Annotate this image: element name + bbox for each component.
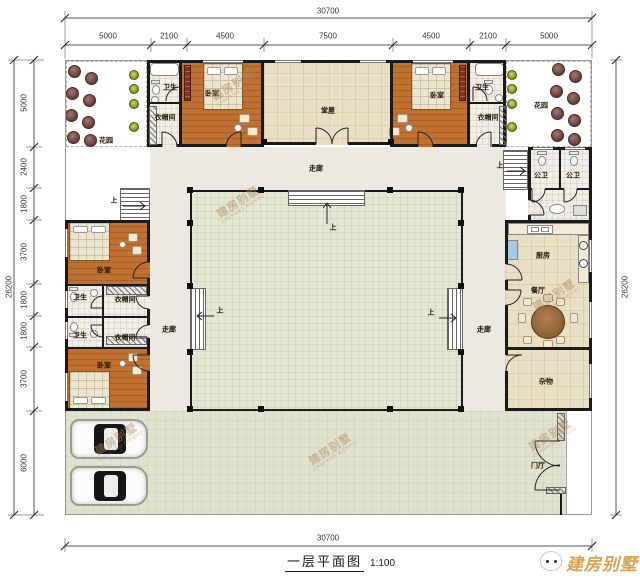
label-storage: 杂物 xyxy=(539,379,553,386)
label-cloak-nw: 衣帽间 xyxy=(155,115,176,122)
door-arcs xyxy=(91,87,577,490)
door-arc xyxy=(564,189,577,202)
dim-extension xyxy=(8,11,622,552)
door-arc xyxy=(506,290,521,305)
label-up-stairs-east: 上 xyxy=(497,163,504,170)
dim-top-seg-3: 7500 xyxy=(319,32,337,41)
up-arrow xyxy=(439,314,456,322)
up-arrow xyxy=(507,167,525,175)
door-arc xyxy=(133,262,149,278)
door-arc xyxy=(332,128,348,144)
dim-top-seg-2: 4500 xyxy=(216,32,234,41)
dim-bottom-total: 30700 xyxy=(317,534,339,543)
label-up-court-north: 上 xyxy=(330,225,337,232)
label-toilet-e2: 公卫 xyxy=(566,173,580,180)
door-arc xyxy=(91,325,103,337)
door-arc xyxy=(226,132,241,147)
dim-left-seg-4: 1800 xyxy=(20,291,29,309)
dim-left-seg-5: 1800 xyxy=(20,322,29,340)
label-bath-w2: 卫生 xyxy=(73,333,87,340)
door-arc xyxy=(476,132,491,147)
dim-top-total: 30700 xyxy=(317,7,339,16)
label-kitchen: 厨房 xyxy=(536,253,550,260)
drawing-title: 一层平面图1:100 xyxy=(285,551,395,571)
label-cloak-ne: 衣帽间 xyxy=(478,115,499,122)
label-hall: 堂屋 xyxy=(321,108,335,115)
label-bedroom-ne: 卧室 xyxy=(430,93,444,100)
mascot-eye xyxy=(554,560,557,563)
label-corridor-north: 走廊 xyxy=(309,166,323,173)
dim-left-seg-3: 3700 xyxy=(20,243,29,261)
door-arc xyxy=(529,200,544,215)
label-cloak-w2: 衣帽间 xyxy=(115,335,136,342)
up-arrow xyxy=(323,203,331,224)
dim-top-seg-1: 2100 xyxy=(160,32,178,41)
door-arc xyxy=(506,264,522,280)
dim-left-seg-6: 3700 xyxy=(20,370,29,388)
label-bedroom-w2: 卧室 xyxy=(97,363,111,370)
label-up-stairs-west: 上 xyxy=(111,198,118,205)
label-toilet-e1: 公卫 xyxy=(534,173,548,180)
dim-right-total: 26200 xyxy=(621,276,630,298)
brand-mascot-icon xyxy=(540,551,562,571)
dim-left-total: 26200 xyxy=(5,276,14,298)
dim-top-seg-0: 5000 xyxy=(99,32,117,41)
dim-top-seg-5: 2100 xyxy=(479,32,497,41)
mascot-eye xyxy=(546,560,549,563)
label-up-court-west: 上 xyxy=(217,308,224,315)
label-cloak-w1: 衣帽间 xyxy=(115,297,136,304)
label-bath-ne: 卫生 xyxy=(475,85,489,92)
dim-left-seg-1: 2400 xyxy=(20,158,29,176)
dim-left-seg-2: 1800 xyxy=(20,195,29,213)
up-arrow xyxy=(123,202,145,210)
label-bath-w1: 卫生 xyxy=(73,295,87,302)
dim-top-seg-4: 4500 xyxy=(422,32,440,41)
door-arc xyxy=(532,189,545,202)
dim-line xyxy=(14,18,616,546)
door-arc xyxy=(506,355,522,371)
floor-plan: 花园 花园 卫生 衣帽间 卧室 堂屋 卧室 卫生 衣帽间 走廊 走廊 走廊 上 … xyxy=(0,0,640,582)
label-up-court-east: 上 xyxy=(428,310,435,317)
door-arc xyxy=(136,296,149,309)
label-garden-right: 花园 xyxy=(534,103,548,110)
drawing-title-text: 一层平面图 xyxy=(285,554,364,572)
label-bedroom-nw: 卧室 xyxy=(205,91,219,98)
up-arrow xyxy=(197,312,214,320)
brand-logo: 建房别墅 xyxy=(566,550,638,575)
label-corridor-east: 走廊 xyxy=(477,327,491,334)
door-arc xyxy=(133,355,149,371)
label-corridor-west: 走廊 xyxy=(162,327,176,334)
label-bath-nw: 卫生 xyxy=(163,85,177,92)
dim-left-seg-7: 6000 xyxy=(20,454,29,472)
label-gate: 门厅 xyxy=(531,463,545,470)
dim-top-seg-6: 5000 xyxy=(540,32,558,41)
dim-ticks xyxy=(10,14,620,550)
label-garden-left: 花园 xyxy=(99,138,113,145)
stair-arrows xyxy=(123,167,525,322)
dim-left-seg-0: 5000 xyxy=(20,94,29,112)
label-bedroom-w1: 卧室 xyxy=(97,268,111,275)
door-arc xyxy=(136,325,149,338)
label-dining: 餐厅 xyxy=(531,288,545,295)
door-arc xyxy=(162,132,177,147)
door-arc xyxy=(316,128,332,144)
door-arc xyxy=(418,132,433,147)
drawing-scale: 1:100 xyxy=(370,558,395,569)
door-arc xyxy=(91,296,103,308)
dimension-lines xyxy=(8,11,622,552)
